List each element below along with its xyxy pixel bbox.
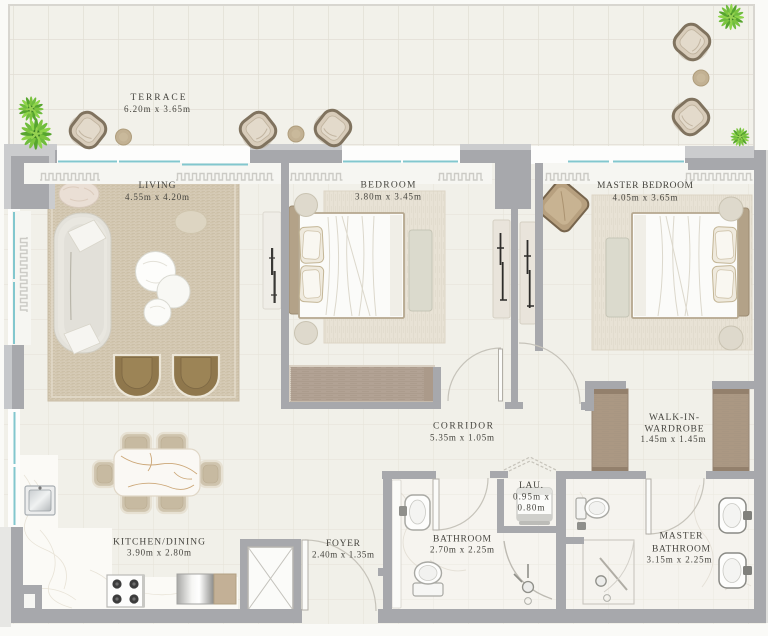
svg-text:1.45m x 1.45m: 1.45m x 1.45m [641,434,706,444]
svg-text:WALK-IN-: WALK-IN- [649,413,699,423]
svg-text:KITCHEN/DINING: KITCHEN/DINING [113,538,205,548]
svg-text:4.05m x 3.65m: 4.05m x 3.65m [613,193,678,203]
svg-text:WARDROBE: WARDROBE [645,425,704,435]
svg-text:TERRACE: TERRACE [131,93,186,103]
svg-text:FOYER: FOYER [326,539,361,549]
svg-text:3.90m x 2.80m: 3.90m x 2.80m [127,548,191,558]
svg-text:2.40m x 1.35m: 2.40m x 1.35m [312,550,374,560]
svg-text:MASTER: MASTER [660,532,704,542]
svg-text:CORRIDOR: CORRIDOR [433,422,494,432]
svg-text:BEDROOM: BEDROOM [361,181,417,191]
svg-text:3.15m x 2.25m: 3.15m x 2.25m [647,555,712,565]
svg-text:0.80m: 0.80m [518,503,545,513]
svg-text:BATHROOM: BATHROOM [652,545,711,555]
svg-text:6.20m x 3.65m: 6.20m x 3.65m [124,104,190,114]
svg-text:LIVING: LIVING [139,181,176,191]
svg-text:LAU.: LAU. [519,481,543,491]
svg-text:5.35m x 1.05m: 5.35m x 1.05m [430,433,494,443]
svg-text:2.70m x 2.25m: 2.70m x 2.25m [430,545,494,555]
svg-text:MASTER BEDROOM: MASTER BEDROOM [597,181,694,191]
svg-text:3.80m x 3.45m: 3.80m x 3.45m [355,192,421,202]
svg-text:0.95m x: 0.95m x [513,492,550,502]
svg-text:4.55m x 4.20m: 4.55m x 4.20m [125,192,189,202]
svg-text:BATHROOM: BATHROOM [433,535,492,545]
